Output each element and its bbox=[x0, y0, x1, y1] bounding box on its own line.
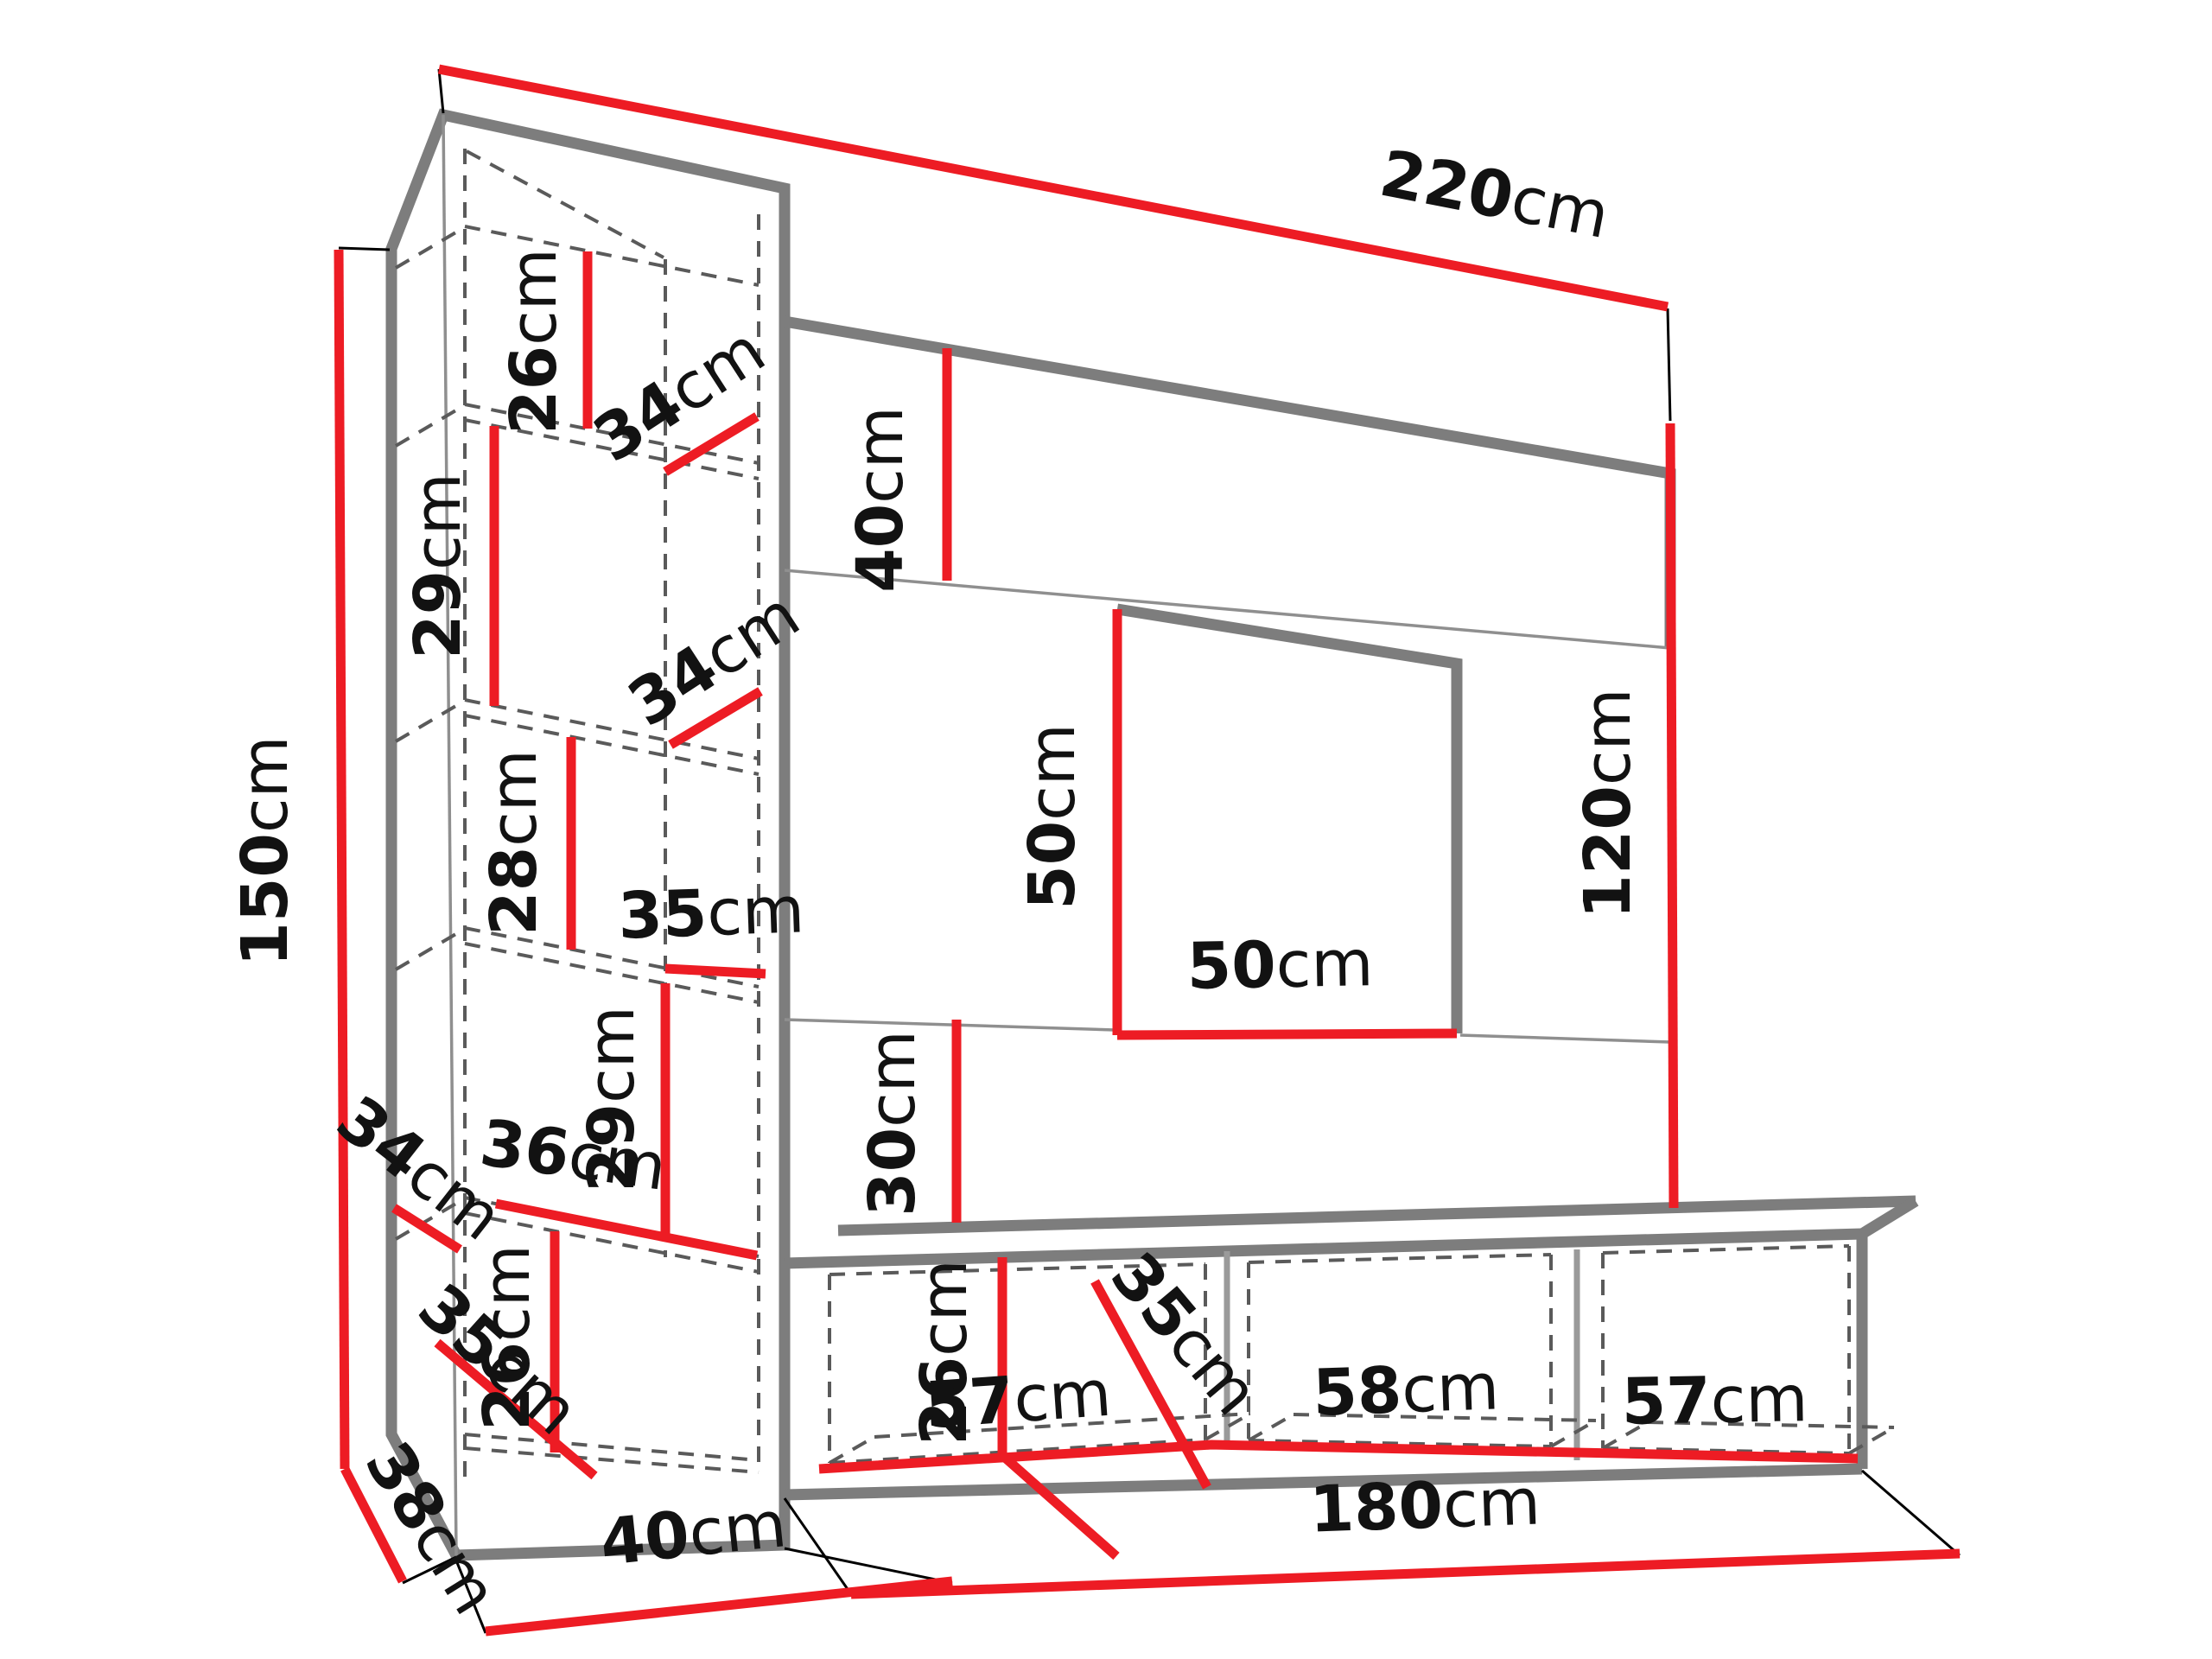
label-left-height: 150cm bbox=[228, 735, 302, 966]
label-bench-total-width: 180cm bbox=[1308, 1465, 1541, 1547]
dim-line-50-horiz bbox=[1117, 1033, 1457, 1035]
label-bench-comp2-width: 58cm bbox=[1312, 1350, 1501, 1430]
diagram-canvas: 220cm 150cm 26cm 34cm 29cm 34cm 28cm 35c… bbox=[0, 0, 2212, 1659]
label-right-height: 120cm bbox=[1571, 688, 1645, 918]
label-niche-width: 50cm bbox=[1186, 926, 1374, 1004]
label-cab-inner-width: 35cm bbox=[617, 873, 806, 953]
dim-line-180 bbox=[851, 1554, 1960, 1594]
furniture-dimension-diagram: 220cm 150cm 26cm 34cm 29cm 34cm 28cm 35c… bbox=[0, 0, 2212, 1659]
dim-line-57-58-57 bbox=[819, 1445, 1858, 1469]
label-cab-comp1-height: 26cm bbox=[497, 248, 571, 435]
cabinet-top-diagonal bbox=[467, 151, 664, 257]
ext-180-right bbox=[1862, 1471, 1960, 1555]
bench-top-back-edge bbox=[838, 1201, 1916, 1230]
panel-groove-left bbox=[785, 1020, 1115, 1030]
ext-40-right bbox=[785, 1548, 952, 1583]
dim-line-bench-depth-aux bbox=[1004, 1457, 1116, 1556]
label-bench-comp1-width: 57cm bbox=[923, 1357, 1114, 1444]
panel-groove-right bbox=[1460, 1035, 1670, 1042]
label-top-panel-height: 40cm bbox=[843, 406, 918, 593]
label-total-width: 220cm bbox=[1374, 137, 1615, 253]
ext-180-left bbox=[785, 1498, 851, 1594]
side-depth-s2 bbox=[396, 702, 463, 741]
ext-150-top bbox=[339, 248, 390, 250]
label-cab-comp3-height: 28cm bbox=[477, 749, 551, 936]
bench-top-front-edge bbox=[785, 1234, 1862, 1263]
shelf5-bottom bbox=[465, 1448, 759, 1472]
side-depth-s1 bbox=[396, 406, 463, 446]
label-cab-comp2-height: 29cm bbox=[401, 473, 475, 659]
label-cab-top-depth: 34cm bbox=[581, 313, 778, 477]
side-depth-s3 bbox=[396, 930, 463, 969]
shelf5-top bbox=[465, 1434, 759, 1460]
label-bench-comp3-width: 57cm bbox=[1621, 1362, 1808, 1440]
ext-220-left bbox=[439, 69, 443, 113]
dim-line-35-inner bbox=[665, 969, 766, 974]
ext-220-right bbox=[1668, 308, 1670, 421]
side-depth-top bbox=[396, 228, 463, 268]
label-niche-height: 50cm bbox=[1015, 723, 1090, 910]
label-cabinet-width: 40cm bbox=[597, 1487, 791, 1580]
label-gap-height: 30cm bbox=[855, 1030, 930, 1217]
dim-line-120 bbox=[1670, 423, 1674, 1208]
dim-line-150 bbox=[339, 250, 345, 1469]
